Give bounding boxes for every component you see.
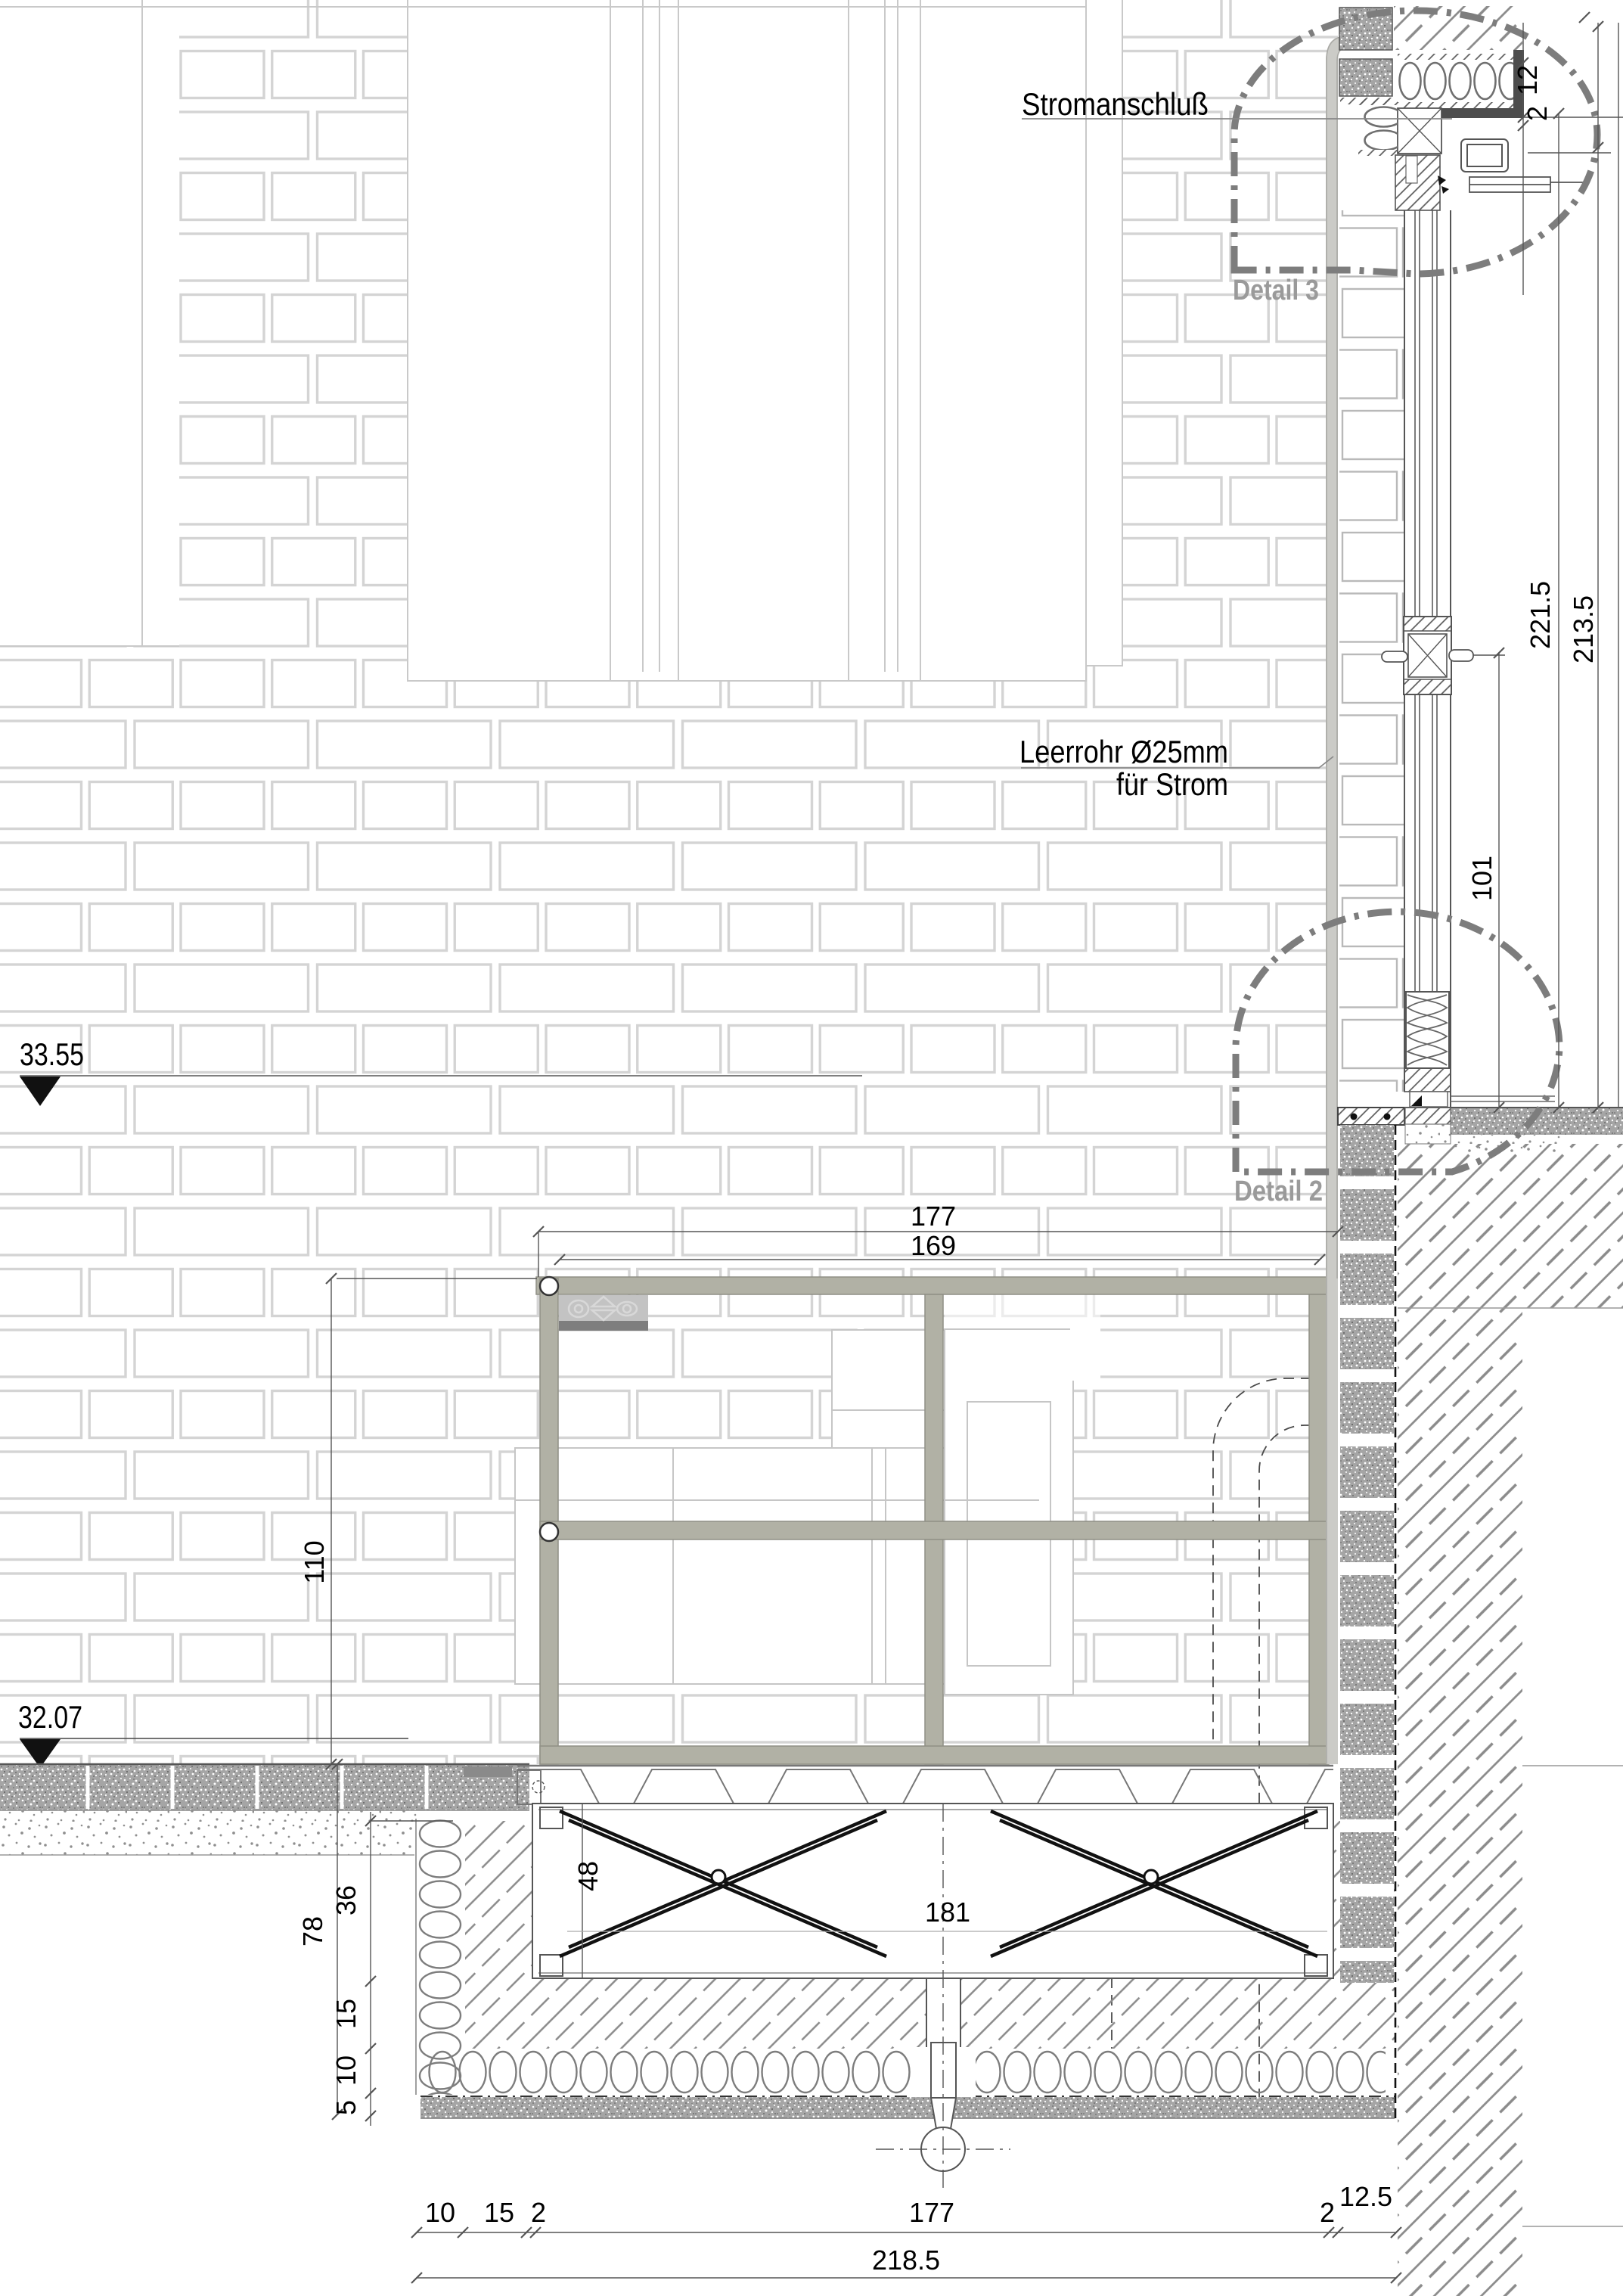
svg-text:181: 181 bbox=[925, 1897, 970, 1928]
svg-text:5: 5 bbox=[330, 2100, 362, 2115]
svg-text:48: 48 bbox=[573, 1861, 604, 1891]
svg-text:15: 15 bbox=[484, 2197, 514, 2228]
svg-text:177: 177 bbox=[909, 2197, 954, 2228]
svg-text:Detail 2: Detail 2 bbox=[1234, 1176, 1323, 1207]
svg-text:für Strom: für Strom bbox=[1116, 766, 1228, 802]
svg-text:169: 169 bbox=[911, 1230, 956, 1261]
svg-text:12.5: 12.5 bbox=[1339, 2181, 1392, 2212]
svg-text:177: 177 bbox=[911, 1201, 956, 1232]
svg-text:33.55: 33.55 bbox=[20, 1036, 84, 1072]
svg-text:221.5: 221.5 bbox=[1525, 581, 1556, 649]
svg-text:110: 110 bbox=[299, 1540, 330, 1583]
svg-text:213.5: 213.5 bbox=[1568, 595, 1599, 663]
svg-text:Detail 3: Detail 3 bbox=[1233, 275, 1319, 306]
svg-text:2: 2 bbox=[1320, 2197, 1335, 2228]
svg-text:Stromanschluß: Stromanschluß bbox=[1022, 86, 1209, 122]
svg-text:78: 78 bbox=[297, 1916, 328, 1946]
svg-text:36: 36 bbox=[330, 1885, 362, 1915]
svg-text:10: 10 bbox=[330, 2055, 362, 2086]
svg-text:101: 101 bbox=[1466, 856, 1497, 901]
svg-text:32.07: 32.07 bbox=[18, 1699, 82, 1735]
svg-text:2: 2 bbox=[1522, 106, 1553, 121]
svg-text:Leerrohr Ø25mm: Leerrohr Ø25mm bbox=[1019, 734, 1228, 769]
svg-text:12: 12 bbox=[1512, 65, 1543, 95]
svg-text:15: 15 bbox=[330, 1999, 362, 2029]
svg-text:218.5: 218.5 bbox=[872, 2245, 940, 2276]
svg-text:2: 2 bbox=[531, 2197, 546, 2228]
svg-text:10: 10 bbox=[425, 2197, 455, 2228]
